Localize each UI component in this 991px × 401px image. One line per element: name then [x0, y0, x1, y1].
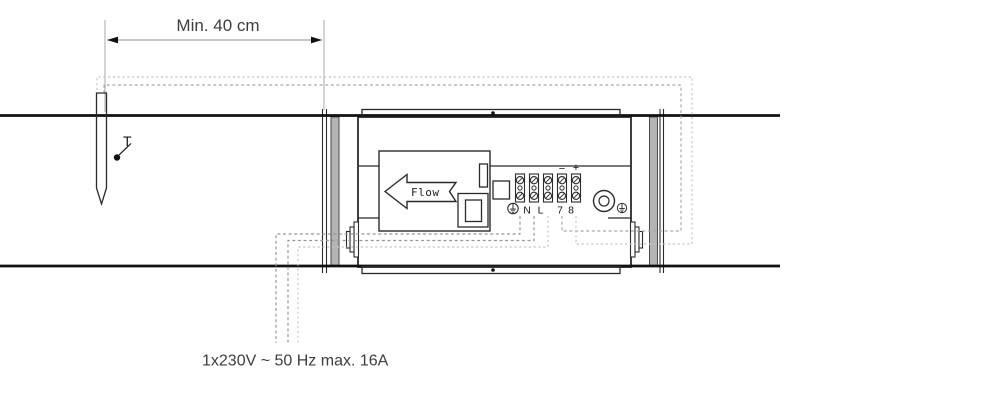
sensor-label: T — [123, 133, 132, 149]
min-distance-dimension: Min. 40 cm — [105, 16, 324, 112]
coupling-collar — [331, 117, 339, 266]
temperature-sensor: T — [97, 93, 133, 204]
gland-step — [354, 222, 359, 257]
coupling-collar — [650, 117, 658, 266]
terminal-8 — [572, 174, 581, 202]
flow-label: Flow — [411, 186, 440, 199]
gland-step — [639, 232, 643, 249]
terminal-pe — [516, 174, 525, 202]
duct-installation-diagram: Min. 40 cm Flow − + — [0, 0, 991, 401]
plus-polarity-label: + — [573, 162, 579, 174]
terminal-label-7: 7 — [557, 205, 563, 217]
flange-screw-icon — [491, 111, 495, 115]
terminal-label-l: L — [538, 205, 544, 217]
duct-joint-right — [650, 109, 664, 273]
duct-unit-device: Flow − + N L 7 8 — [358, 117, 631, 267]
cable-gland-right — [631, 222, 643, 257]
diagram-canvas: Min. 40 cm Flow − + — [0, 0, 991, 401]
terminal-label-n: N — [523, 205, 531, 217]
terminal-label-8: 8 — [568, 205, 574, 217]
cable-gland-left — [347, 222, 359, 257]
duct-joint-left — [323, 109, 340, 273]
minus-polarity-label: − — [559, 163, 565, 175]
terminal-n — [530, 174, 539, 202]
terminal-l — [544, 174, 553, 202]
gland-step — [350, 227, 354, 252]
arrowhead-right-icon — [311, 37, 322, 44]
sensor-leader-dot — [114, 154, 120, 160]
dimension-label: Min. 40 cm — [176, 16, 259, 35]
power-rating-label: 1x230V ~ 50 Hz max. 16A — [202, 353, 389, 370]
gland-step — [631, 222, 636, 257]
terminal-7 — [558, 174, 567, 202]
flange-screw-icon — [491, 268, 495, 272]
arrowhead-left-icon — [107, 37, 118, 44]
